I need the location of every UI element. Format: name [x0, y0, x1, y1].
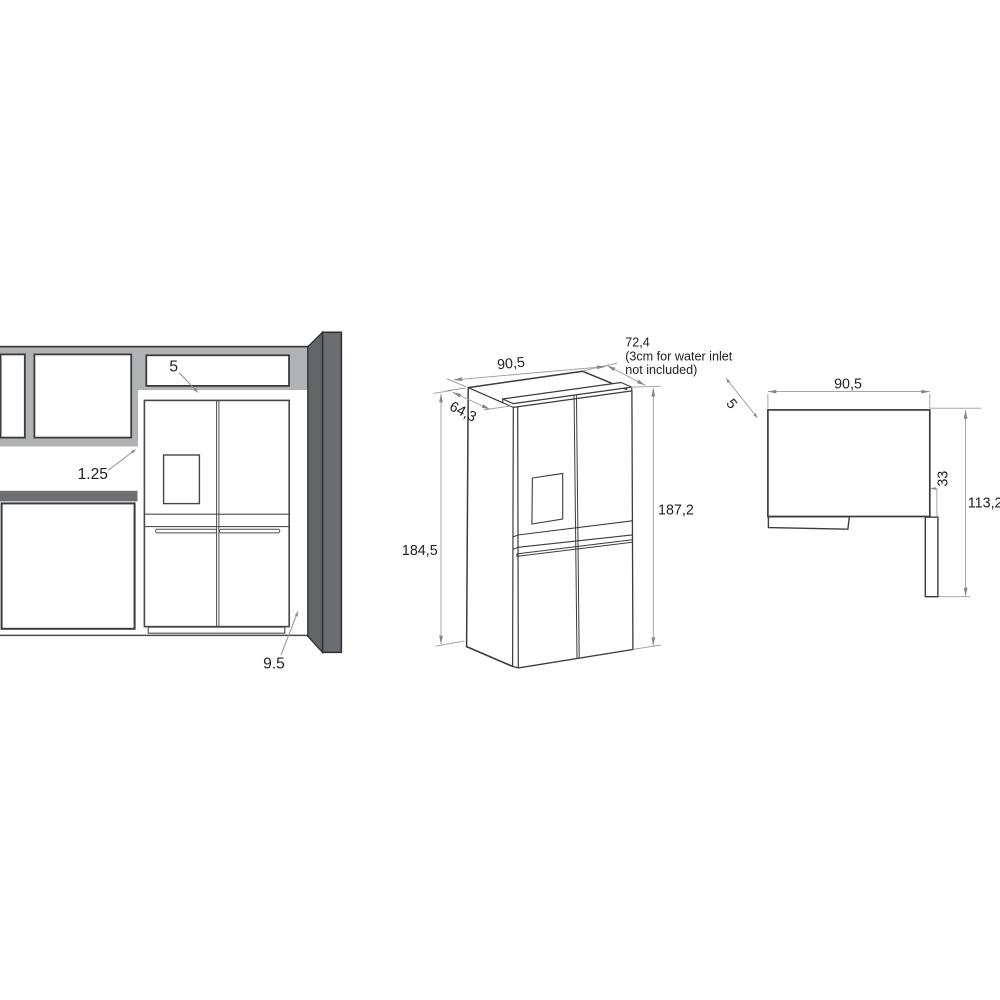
- svg-text:90,5: 90,5: [834, 376, 862, 392]
- svg-text:90,5: 90,5: [496, 355, 525, 374]
- svg-text:(3cm for water inlet: (3cm for water inlet: [625, 349, 733, 363]
- svg-text:1.25: 1.25: [78, 466, 109, 483]
- svg-text:187,2: 187,2: [658, 503, 694, 519]
- svg-text:184,5: 184,5: [402, 543, 438, 559]
- svg-text:113,2: 113,2: [968, 496, 1000, 512]
- svg-text:72,4: 72,4: [625, 336, 650, 350]
- svg-text:not included): not included): [625, 363, 697, 377]
- svg-text:5: 5: [722, 396, 740, 412]
- svg-text:9.5: 9.5: [263, 655, 285, 672]
- svg-text:33: 33: [936, 471, 952, 487]
- svg-text:5: 5: [169, 359, 178, 376]
